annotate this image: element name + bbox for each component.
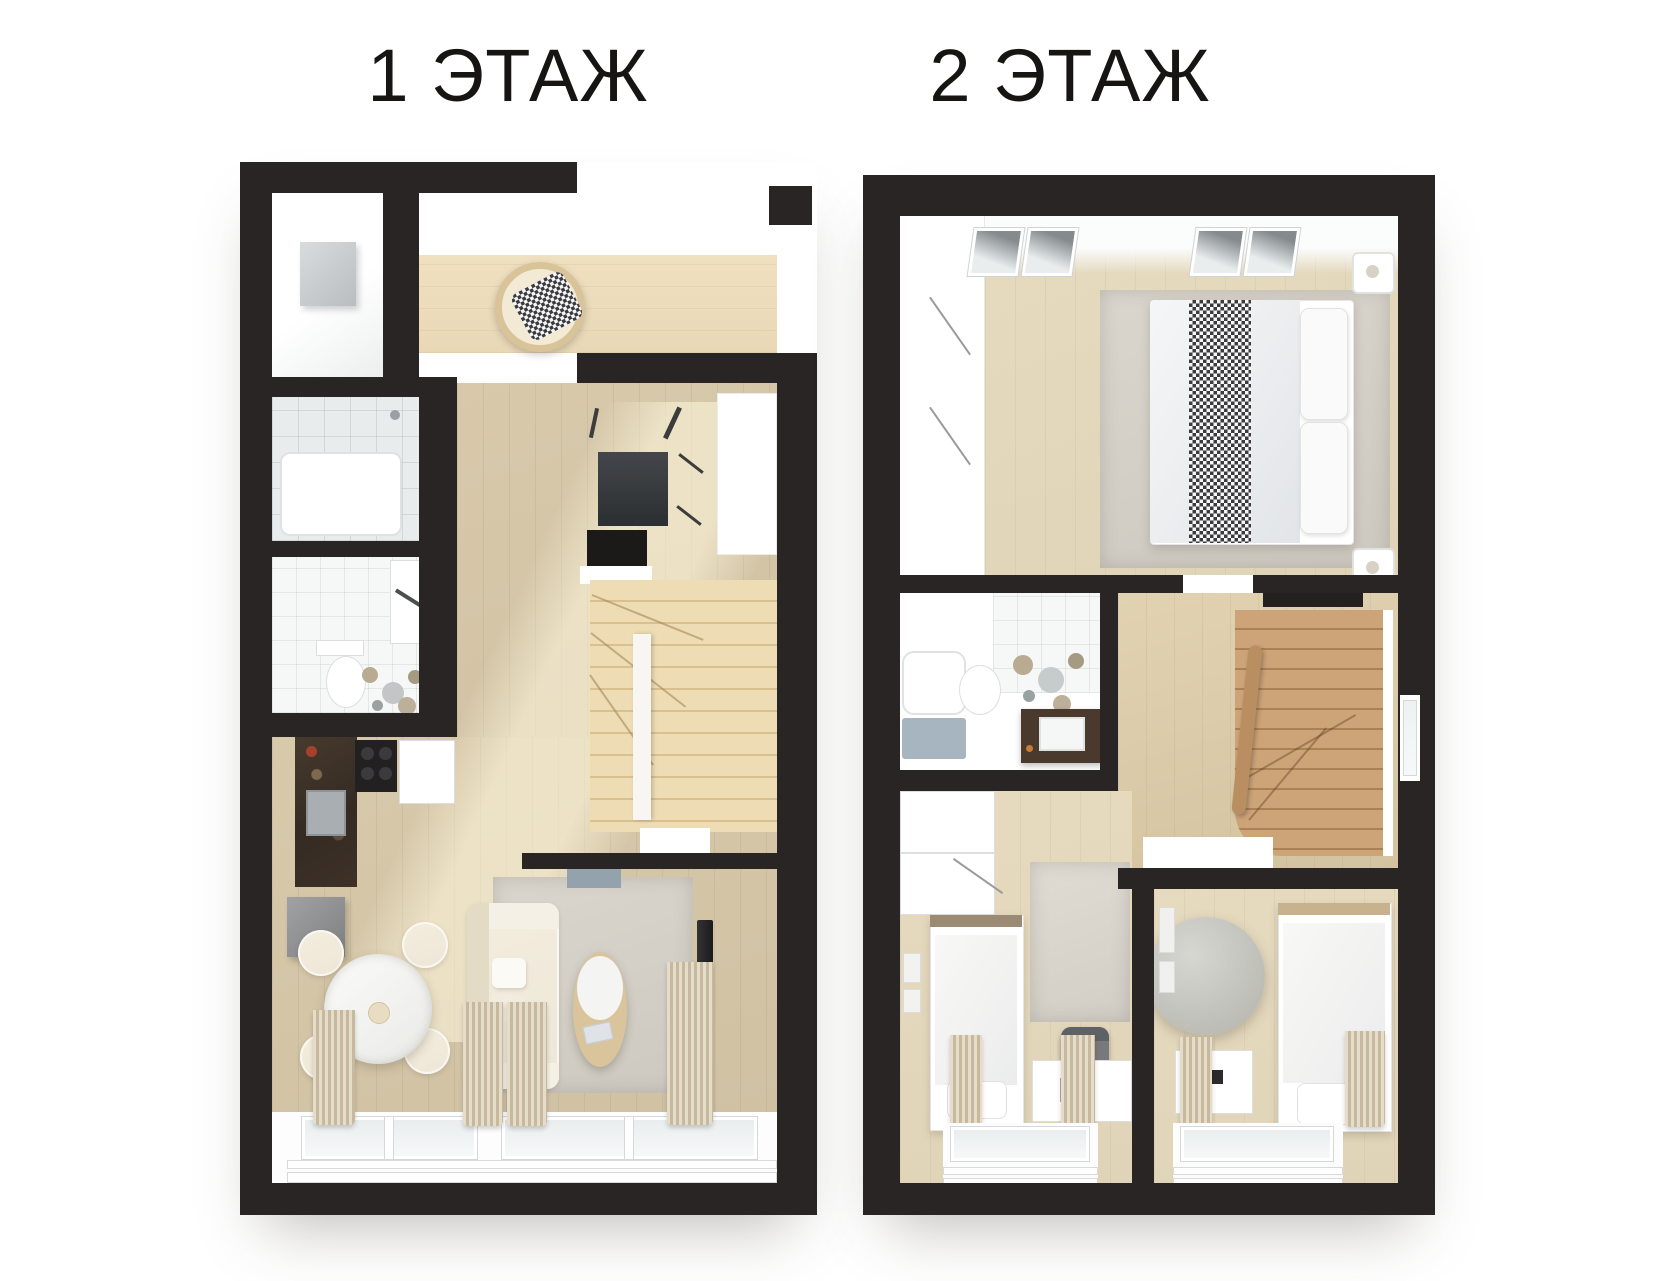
kid1-rug [1030, 862, 1130, 1022]
decor-dot [1023, 690, 1035, 702]
bed-pillow [1300, 422, 1348, 534]
sofa-pillow [492, 958, 526, 988]
stair-landing [1143, 837, 1273, 868]
wall-bathroom2-bottom [240, 713, 457, 737]
vanity-sink [1039, 717, 1085, 751]
nightstand-lamp [1366, 561, 1379, 574]
skylight-window [1022, 228, 1079, 276]
curtain [463, 1002, 503, 1126]
coffee-table-top [577, 956, 623, 1020]
wall-left [240, 162, 272, 1215]
wall-bathrooms-right [419, 377, 457, 737]
floor2-plan [863, 175, 1435, 1215]
burner [379, 767, 392, 780]
skylight-window [1190, 228, 1247, 276]
wall-bottom [240, 1183, 817, 1215]
wall-frame [903, 989, 921, 1013]
dining-chair [298, 930, 344, 976]
decor-dot [372, 700, 383, 711]
kitchen-sink [306, 790, 346, 836]
wall-hall [577, 353, 817, 383]
stair-side-wall [1383, 610, 1393, 856]
floor1-title: 1 ЭТАЖ [228, 28, 788, 124]
wall-bathroom-right [1100, 593, 1118, 791]
skylight-window [968, 228, 1025, 276]
window [1181, 1127, 1333, 1161]
shower-head [390, 410, 400, 420]
doormat [567, 868, 621, 888]
kitchen-cabinet [399, 740, 455, 804]
wall-shelf [1159, 961, 1175, 993]
closet [717, 393, 777, 555]
candle [1026, 745, 1033, 752]
bathtub [902, 651, 966, 715]
burner [361, 767, 374, 780]
wall-boiler-bottom [240, 377, 419, 397]
dining-chair [402, 922, 448, 968]
water-heater [300, 242, 356, 306]
floor2-title: 2 ЭТАЖ [790, 28, 1350, 124]
toilet-tank [316, 640, 364, 656]
stair-void [1263, 593, 1363, 607]
curtain [667, 962, 713, 1125]
decor-dot [362, 667, 378, 683]
wall-stairhall-bottom [1118, 868, 1398, 889]
flower-decor [306, 746, 317, 757]
cooktop [355, 740, 397, 792]
window-sill [943, 1167, 1098, 1175]
wall-shelf [1159, 907, 1175, 953]
toilet-bowl [959, 665, 1001, 715]
window-mullion [625, 1117, 633, 1159]
wall-bathroom-bottom [863, 770, 1118, 791]
floor1-plan [240, 162, 817, 1215]
kid2-bed-headboard [1278, 903, 1390, 915]
kid1-bed-headboard [930, 915, 1022, 927]
stair-hall-side-window-pane [1404, 701, 1416, 775]
wall-entry-pier [769, 186, 812, 225]
curtain [950, 1035, 982, 1127]
kid1-closet [900, 791, 995, 853]
curtain [1180, 1037, 1212, 1125]
wall-boiler-right [383, 193, 419, 397]
wall-frame [903, 953, 921, 983]
window-sill [287, 1160, 777, 1169]
window-sill [1173, 1167, 1343, 1175]
entry-hall-floor [419, 255, 777, 353]
kitchen-tall-unit [598, 452, 668, 514]
wall-living-top [522, 853, 817, 869]
floorplan-canvas: 1 ЭТАЖ 2 ЭТАЖ [0, 0, 1680, 1281]
wall-top [240, 162, 577, 193]
nightstand-lamp [1366, 265, 1379, 278]
stair-railing [633, 634, 651, 820]
curtain [313, 1010, 355, 1125]
wall-bathroom1-bottom [240, 541, 457, 557]
wall-right [777, 353, 817, 1215]
wall-top [863, 175, 1435, 216]
decor-dot [1068, 653, 1084, 669]
kitchen-island [587, 530, 647, 566]
skylight-window [1244, 228, 1301, 276]
window-mullion [385, 1117, 393, 1159]
bathtub [280, 452, 402, 536]
curtain [1345, 1031, 1385, 1127]
table-plate [368, 1002, 390, 1024]
toilet-bowl [326, 656, 366, 708]
sofa-armrest [489, 903, 559, 929]
stair-landing [640, 828, 710, 853]
window-sill [287, 1172, 777, 1183]
wall-kids-divider [1132, 868, 1154, 1183]
kitchen-tall-unit-base [598, 514, 668, 526]
window [951, 1127, 1089, 1161]
bed-pillow [1300, 308, 1348, 420]
bed-runner [1189, 300, 1251, 543]
washing-machine [902, 715, 966, 759]
decor-dot [1038, 667, 1064, 693]
wall-bedroom-bottom [1253, 575, 1398, 593]
curtain [507, 1002, 547, 1126]
wall-bedroom-bottom [900, 575, 1183, 593]
kid1-closet [900, 853, 995, 915]
wall-left [863, 175, 900, 1215]
decor-dot [1013, 655, 1033, 675]
burner [361, 747, 374, 760]
wall-bottom [863, 1183, 1435, 1215]
curtain [1061, 1035, 1095, 1127]
burner [379, 747, 392, 760]
